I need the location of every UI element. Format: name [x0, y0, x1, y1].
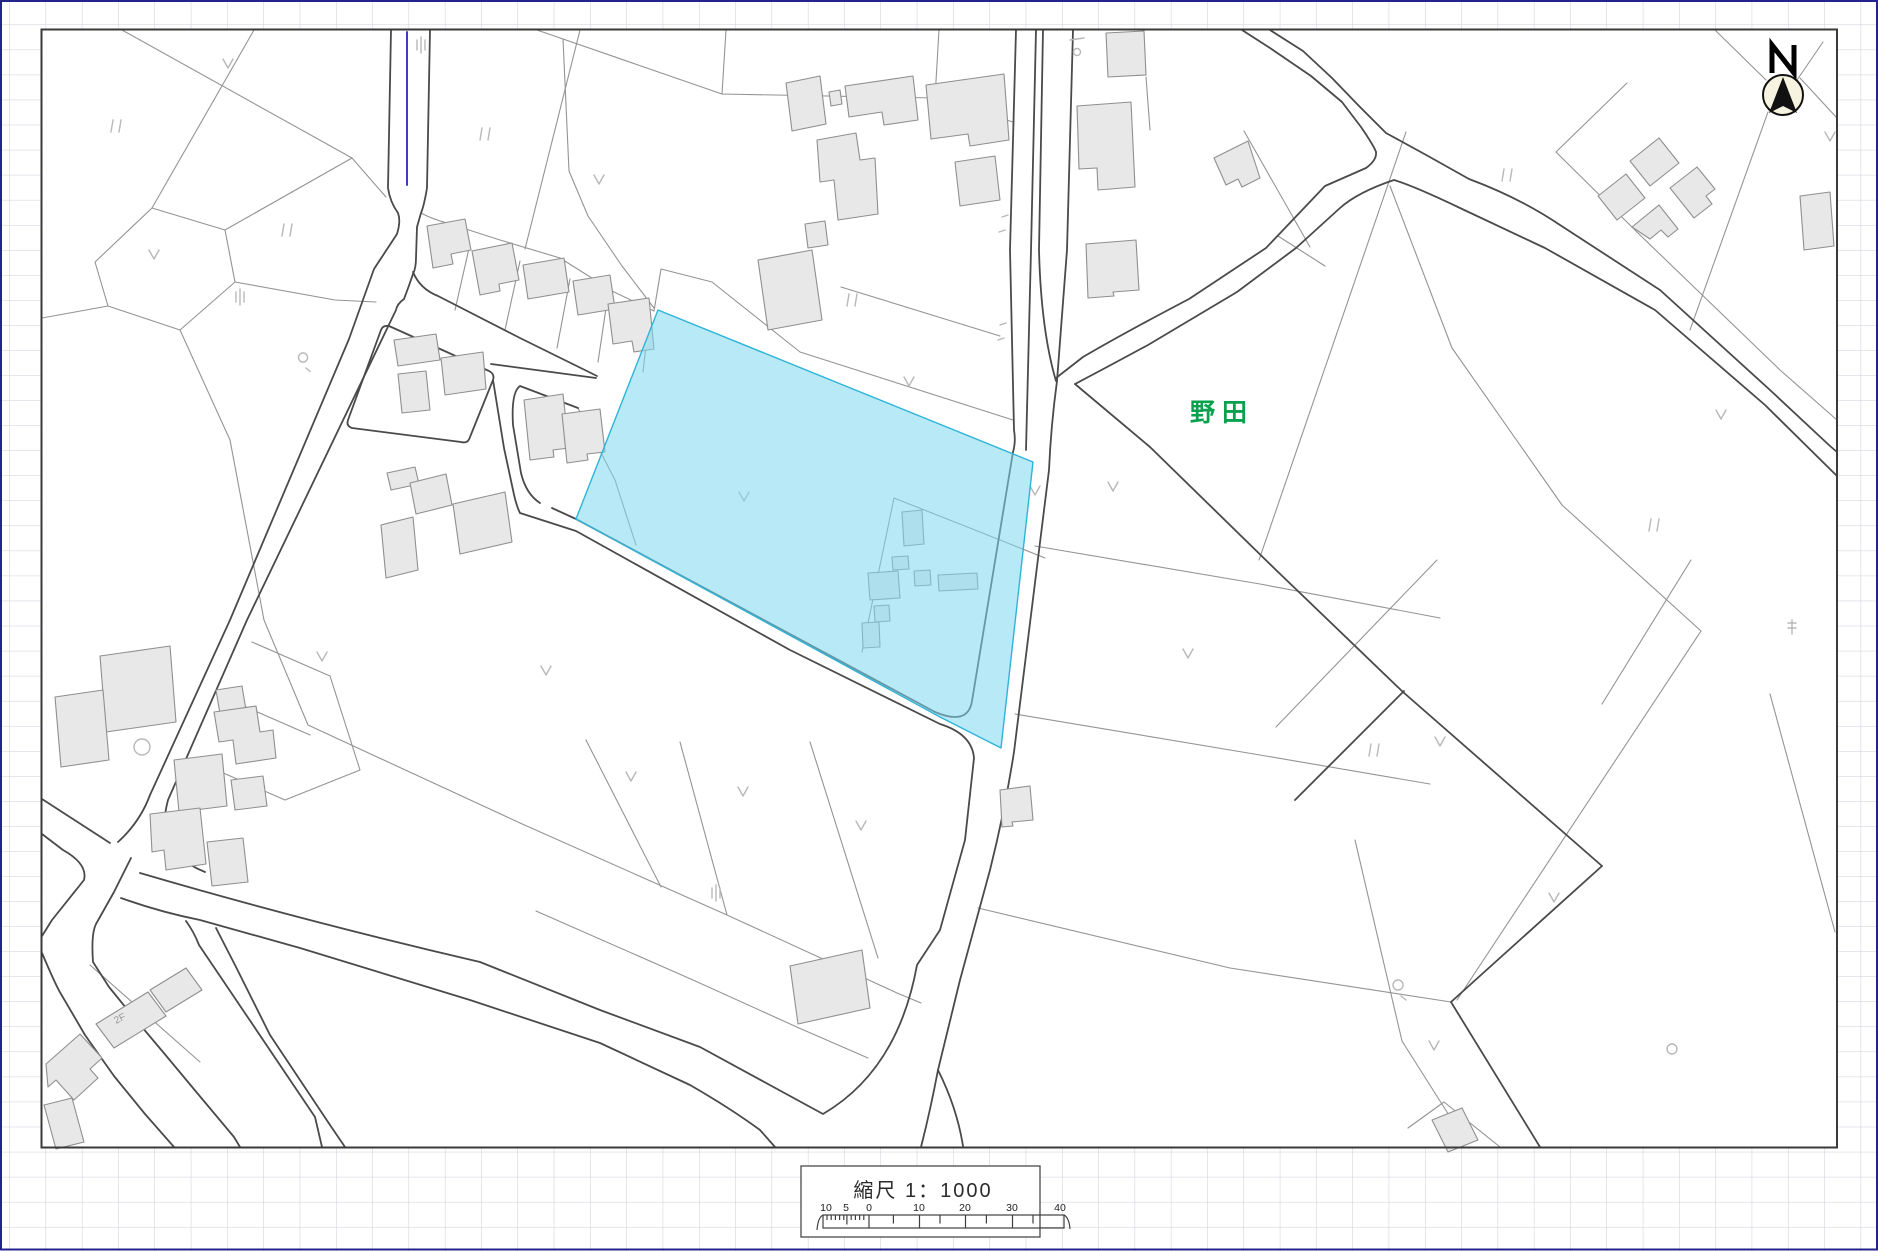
- svg-text:5: 5: [843, 1202, 849, 1214]
- svg-text:10: 10: [913, 1202, 925, 1214]
- svg-text:10: 10: [820, 1202, 832, 1214]
- svg-text:縮尺 1：1000: 縮尺 1：1000: [853, 1179, 992, 1202]
- svg-text:野田: 野田: [1190, 399, 1254, 427]
- svg-text:40: 40: [1054, 1202, 1066, 1214]
- svg-text:30: 30: [1006, 1202, 1018, 1214]
- svg-text:0: 0: [866, 1202, 872, 1214]
- svg-text:20: 20: [959, 1202, 971, 1214]
